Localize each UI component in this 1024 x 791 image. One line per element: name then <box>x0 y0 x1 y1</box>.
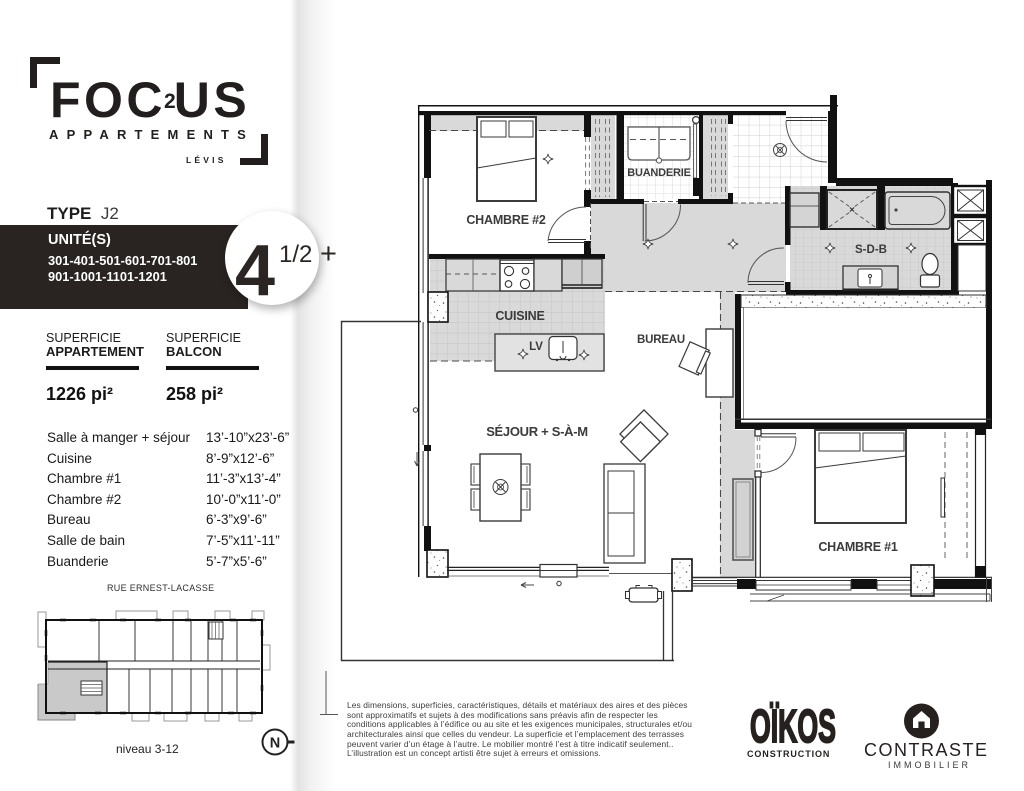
svg-text:S-D-B: S-D-B <box>855 244 887 256</box>
svg-text:BUANDERIE: BUANDERIE <box>627 167 691 179</box>
svg-text:SÉJOUR + S-À-M: SÉJOUR + S-À-M <box>486 424 588 439</box>
svg-text:CUISINE: CUISINE <box>495 309 544 323</box>
svg-text:N: N <box>270 736 280 752</box>
svg-text:CHAMBRE #2: CHAMBRE #2 <box>466 213 546 227</box>
svg-text:CHAMBRE #1: CHAMBRE #1 <box>818 540 898 554</box>
svg-text:BUREAU: BUREAU <box>637 334 685 346</box>
svg-text:LV: LV <box>529 341 543 353</box>
